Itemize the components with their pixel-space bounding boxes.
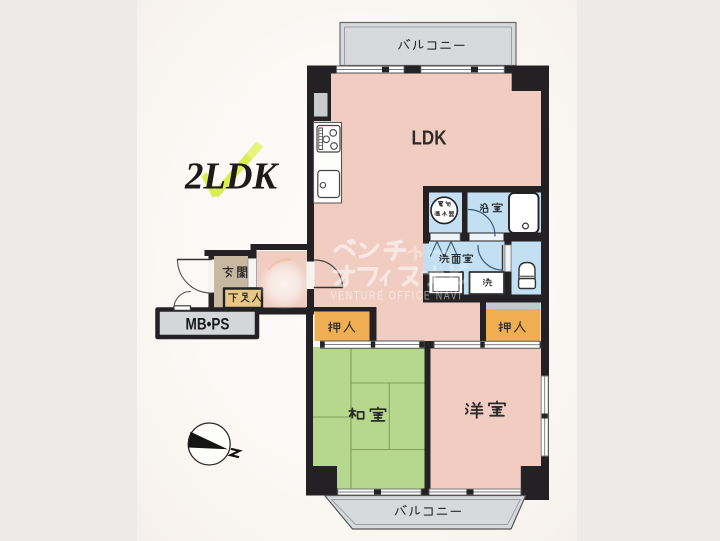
svg-text:2LDK: 2LDK [184,156,280,198]
svg-text:VENTURE OFFICE NAVI: VENTURE OFFICE NAVI [331,291,463,303]
svg-text:MB•PS: MB•PS [186,316,230,334]
svg-text:LDK: LDK [412,127,447,150]
